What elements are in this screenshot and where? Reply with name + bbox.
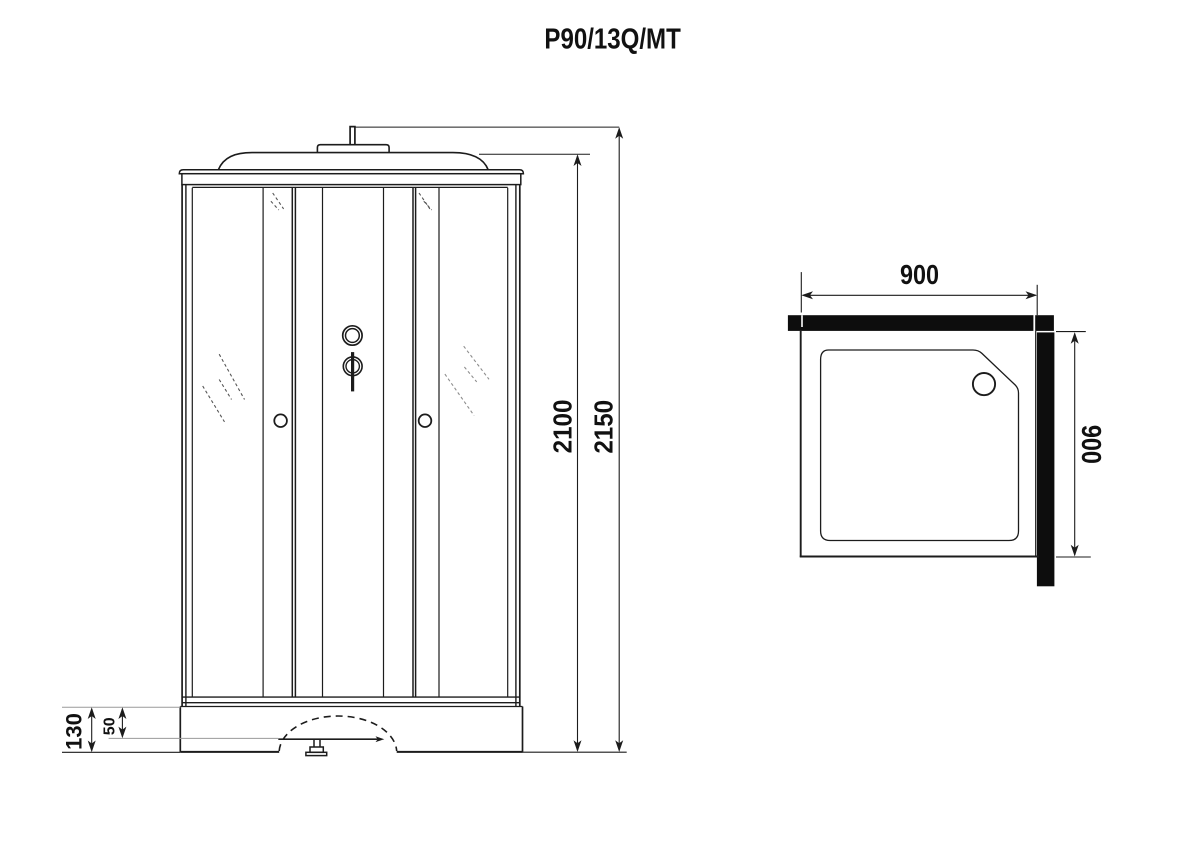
svg-text:2150: 2150 [590,400,619,454]
svg-text:900: 900 [900,260,939,290]
svg-text:130: 130 [62,713,87,750]
svg-text:50: 50 [102,717,119,735]
svg-text:P90/13Q/MT: P90/13Q/MT [544,23,680,56]
svg-text:900: 900 [1076,425,1106,464]
svg-text:2100: 2100 [549,400,578,454]
